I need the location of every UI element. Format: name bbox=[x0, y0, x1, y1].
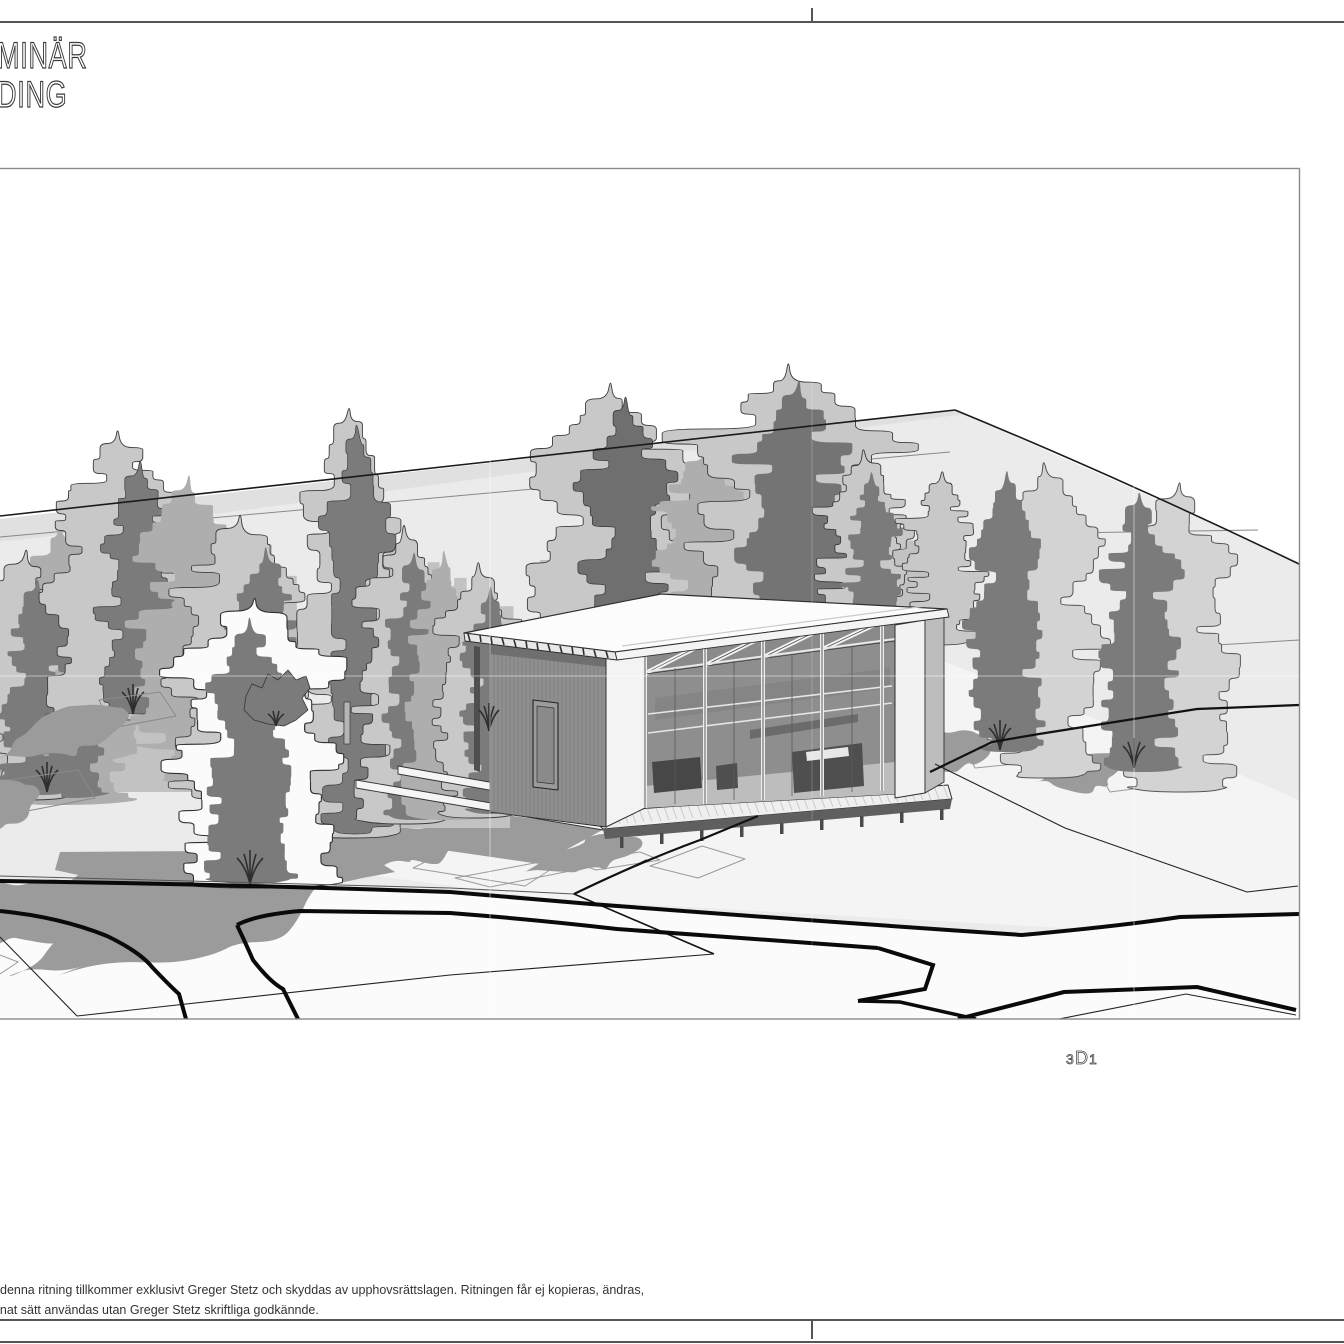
svg-text:3: 3 bbox=[1066, 1051, 1074, 1067]
svg-text:1: 1 bbox=[1089, 1051, 1097, 1067]
svg-text:D: D bbox=[1075, 1048, 1088, 1068]
